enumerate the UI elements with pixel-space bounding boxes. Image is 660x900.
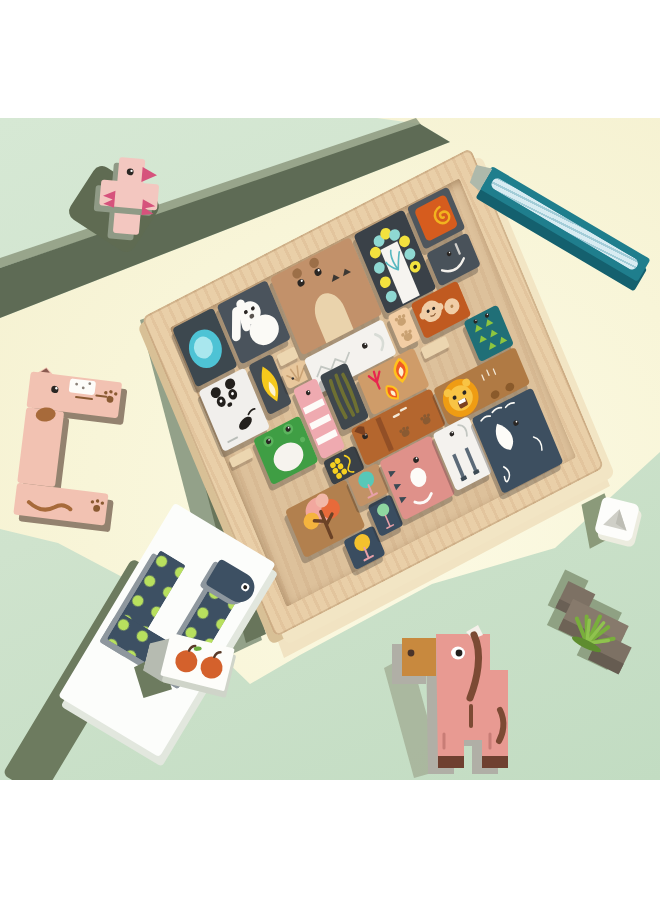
snake-eye <box>240 582 251 593</box>
loose-piece-horse <box>378 622 530 782</box>
cat-decor <box>3 364 125 528</box>
letterbox-bottom <box>0 780 660 900</box>
bird-face-decor <box>97 156 164 239</box>
loose-piece-cat <box>3 364 125 528</box>
maze-wall <box>229 448 254 468</box>
product-photo <box>0 0 660 900</box>
loose-piece-bird <box>97 156 164 239</box>
letterbox-top <box>0 0 660 118</box>
